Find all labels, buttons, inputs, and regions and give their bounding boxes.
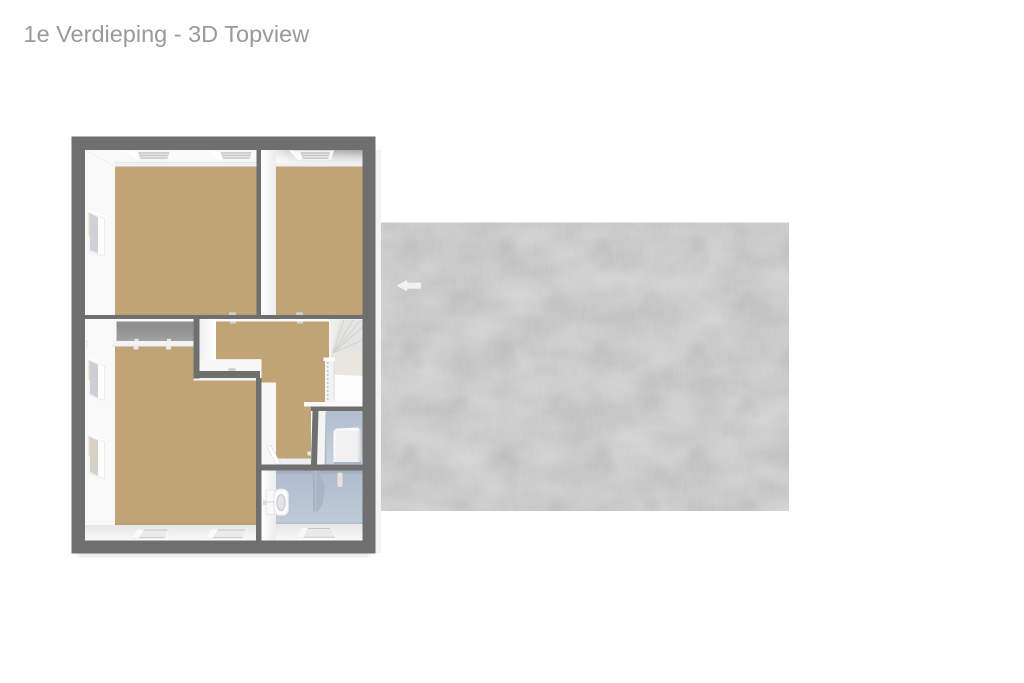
svg-text:1e Verdieping - 3D Topview: 1e Verdieping - 3D Topview xyxy=(24,21,311,47)
